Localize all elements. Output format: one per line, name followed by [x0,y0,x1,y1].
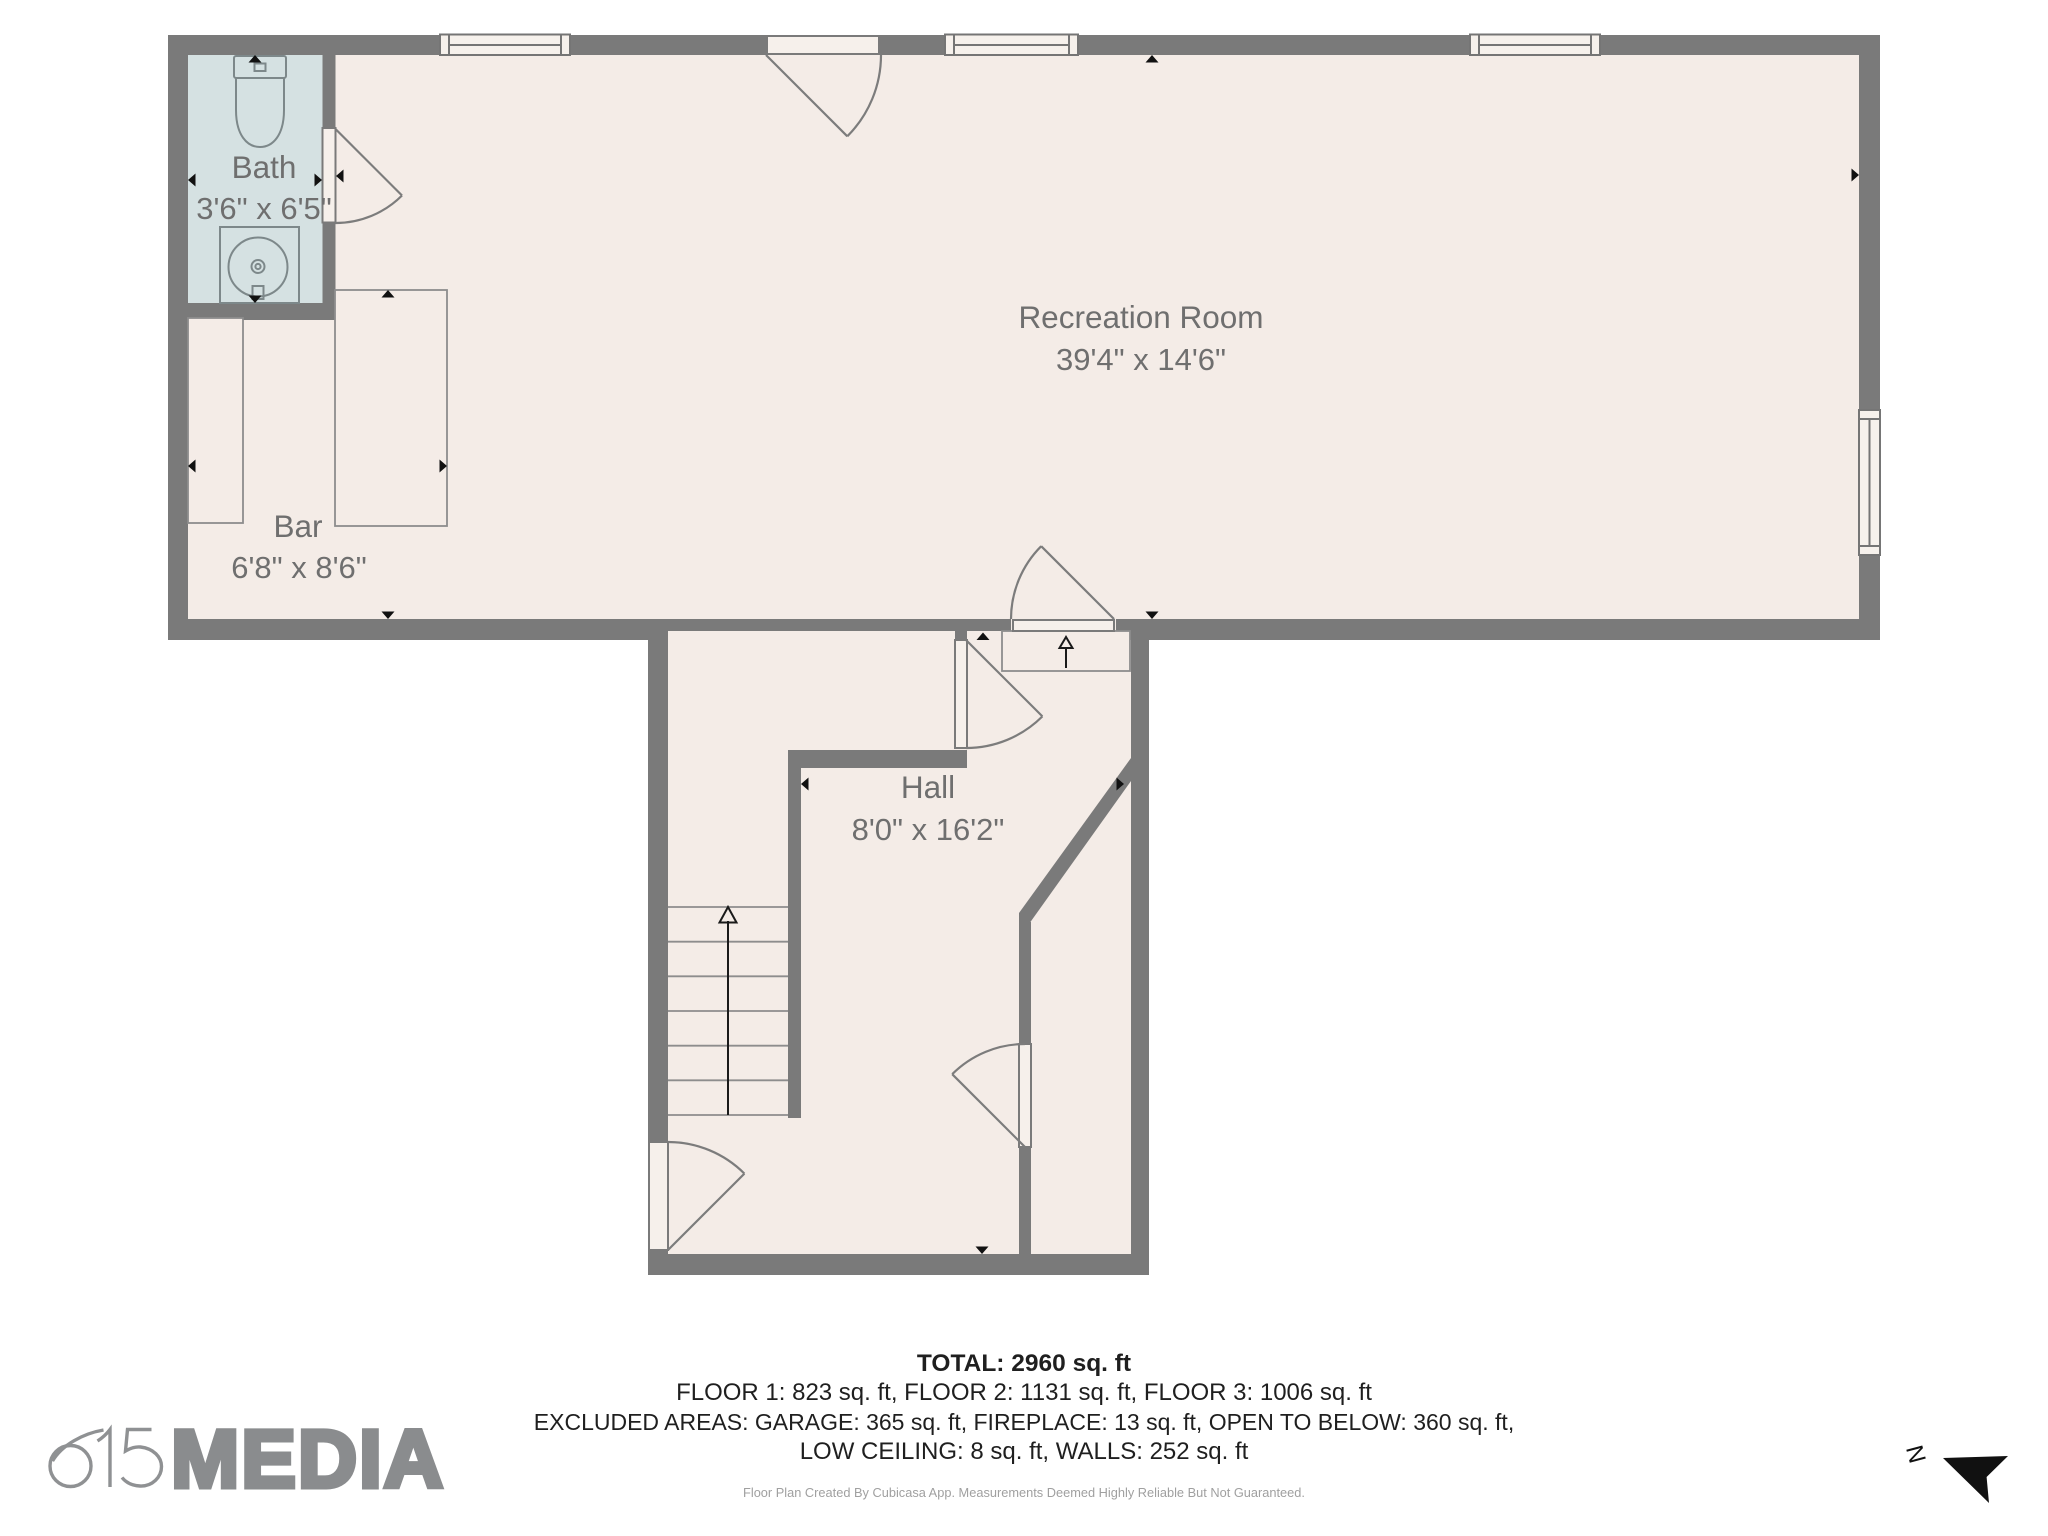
svg-text:Recreation Room: Recreation Room [1018,299,1263,335]
svg-text:6'8" x 8'6": 6'8" x 8'6" [231,550,367,585]
svg-text:Bath: Bath [232,149,297,185]
svg-text:Hall: Hall [901,769,955,805]
svg-text:EXCLUDED AREAS: GARAGE: 365 sq: EXCLUDED AREAS: GARAGE: 365 sq. ft, FIRE… [534,1409,1514,1435]
svg-text:TOTAL: 2960 sq. ft: TOTAL: 2960 sq. ft [917,1350,1131,1377]
svg-text:3'6" x 6'5": 3'6" x 6'5" [196,191,332,226]
svg-text:Floor Plan Created By Cubicasa: Floor Plan Created By Cubicasa App. Meas… [743,1485,1305,1500]
svg-text:Bar: Bar [273,508,322,544]
svg-text:LOW CEILING: 8 sq. ft, WALLS:: LOW CEILING: 8 sq. ft, WALLS: 252 sq. ft [800,1438,1249,1465]
svg-text:8'0" x 16'2": 8'0" x 16'2" [852,812,1005,847]
svg-text:39'4" x 14'6": 39'4" x 14'6" [1056,342,1226,377]
svg-text:MEDIA: MEDIA [171,1414,443,1505]
svg-text:FLOOR 1: 823 sq. ft, FLOOR 2:: FLOOR 1: 823 sq. ft, FLOOR 2: 1131 sq. f… [676,1379,1372,1406]
